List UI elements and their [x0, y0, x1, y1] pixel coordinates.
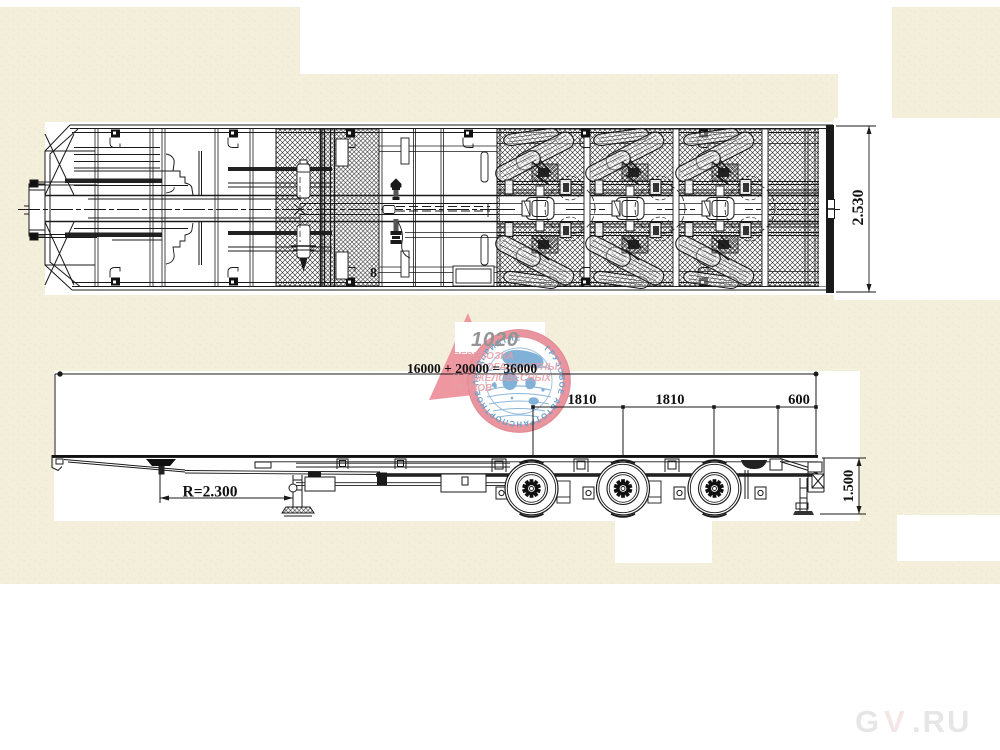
- svg-text:2.530: 2.530: [850, 190, 867, 226]
- svg-text:ГРУЗОВ: ГРУЗОВ: [452, 383, 492, 394]
- svg-text:1.500: 1.500: [841, 470, 857, 503]
- svg-text:600: 600: [788, 392, 810, 408]
- svg-text:16000 + 20000 = 36000: 16000 + 20000 = 36000: [407, 361, 537, 376]
- svg-text:R=2.300: R=2.300: [183, 484, 238, 501]
- svg-text:V: V: [884, 704, 905, 739]
- svg-text:1810: 1810: [656, 392, 685, 408]
- svg-text:1020: 1020: [471, 328, 519, 351]
- svg-text:G: G: [855, 704, 879, 739]
- svg-text:1810: 1810: [568, 392, 597, 408]
- svg-text:8: 8: [370, 266, 377, 281]
- svg-text:.RU: .RU: [912, 704, 971, 739]
